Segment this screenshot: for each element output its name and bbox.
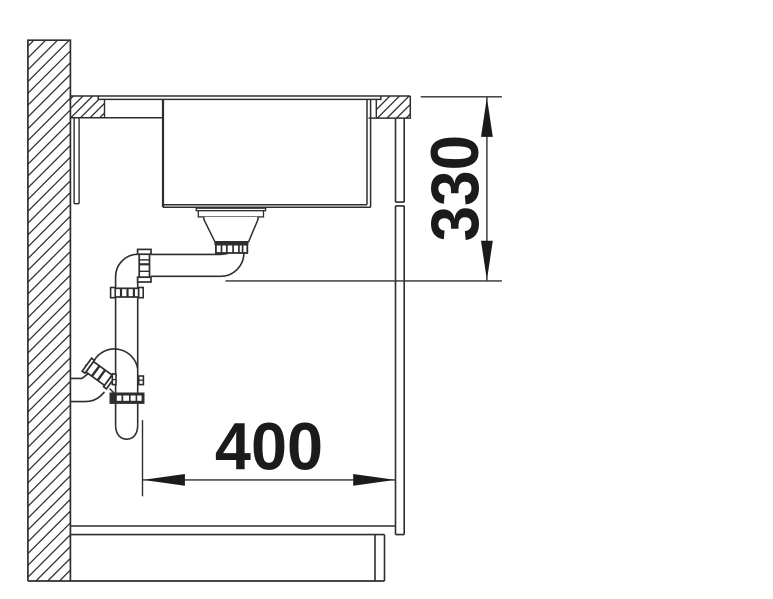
svg-text:330: 330 xyxy=(416,135,492,242)
svg-text:400: 400 xyxy=(215,410,323,484)
